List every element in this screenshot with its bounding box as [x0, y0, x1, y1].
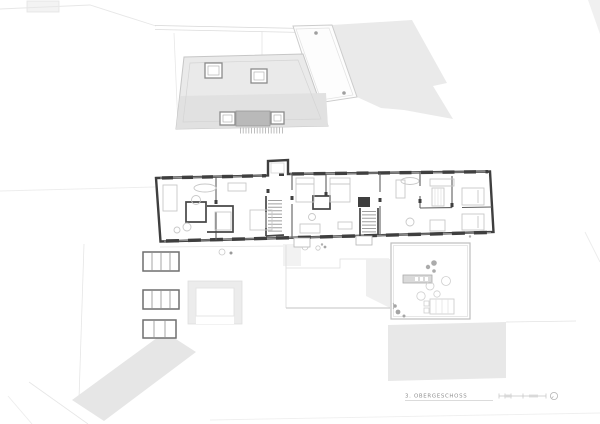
- skylight-band: [143, 252, 179, 271]
- roof-drain-dot: [342, 91, 346, 95]
- plant-dot: [324, 246, 327, 249]
- roof-skylight: [251, 69, 267, 83]
- skylight-band: [143, 320, 176, 338]
- garden-boundary-line: [79, 244, 84, 399]
- north-indicator-icon: [550, 392, 557, 399]
- terrain-contour-line: [0, 5, 156, 26]
- plant-circle: [316, 246, 320, 250]
- balcony-below-edge: [160, 246, 290, 247]
- skylight-band: [143, 290, 179, 309]
- plant-dot: [230, 252, 233, 255]
- main-floor-plan: [156, 160, 494, 247]
- plant-circle: [219, 249, 225, 255]
- driveway-slope: [72, 332, 196, 421]
- lightwell: [188, 281, 242, 324]
- terrace-bench: [403, 275, 432, 283]
- drawing-title: 3. OBERGESCHOSS: [405, 394, 467, 400]
- courtyard-shadow-band: [366, 259, 390, 308]
- hillside-polygon: [332, 20, 453, 119]
- shaft-solid: [358, 197, 370, 207]
- balcony-threshold: [294, 238, 310, 247]
- title-block: 3. OBERGESCHOSS: [405, 392, 558, 400]
- skylight-band-group: [143, 252, 179, 338]
- roof-skylight: [205, 63, 222, 78]
- roof-drain-dot: [314, 31, 318, 35]
- garden-diagonal-line-2: [8, 396, 32, 424]
- lightwell-inner: [196, 288, 234, 316]
- balcony-threshold: [356, 236, 372, 245]
- terrain-sliver-top-right: [588, 0, 600, 34]
- terrain-slab-bottom-right: [388, 322, 506, 381]
- terrain-contour-mid: [0, 187, 155, 191]
- floor-plan-sheet: 3. OBERGESCHOSS: [0, 0, 600, 424]
- roof-skylight: [271, 112, 284, 124]
- roof-terrace: [391, 243, 470, 319]
- roof-hatch-block: [236, 111, 270, 126]
- roof-skylight: [220, 112, 235, 125]
- adjacent-roof-plan: [176, 54, 328, 131]
- scale-bar: [499, 394, 546, 399]
- courtyard-below-outlines: [283, 244, 390, 308]
- terrain-edge-line: [506, 321, 576, 322]
- terrain-contour-bottom: [210, 413, 600, 420]
- terrain-edge-right: [585, 232, 600, 262]
